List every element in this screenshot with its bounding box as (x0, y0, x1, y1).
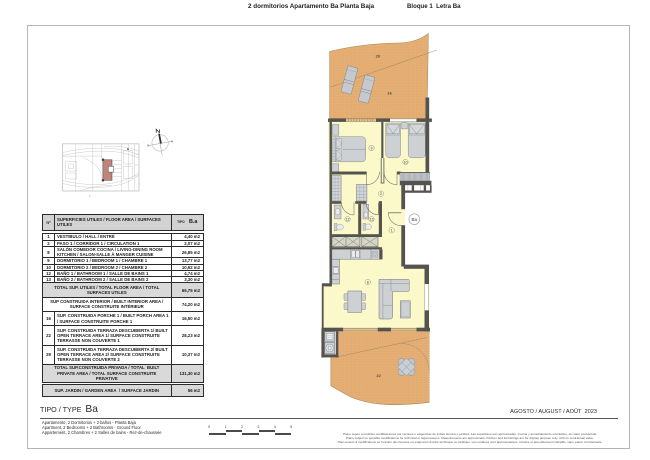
svg-text:c: c (89, 194, 91, 198)
svg-text:10: 10 (404, 160, 408, 164)
svg-text:1: 1 (391, 229, 393, 233)
svg-text:8: 8 (367, 280, 369, 284)
svg-text:2: 2 (380, 192, 382, 196)
svg-text:12: 12 (346, 218, 350, 222)
svg-text:9: 9 (371, 146, 373, 150)
svg-text:Ba: Ba (411, 217, 417, 222)
svg-text:13: 13 (370, 218, 374, 222)
